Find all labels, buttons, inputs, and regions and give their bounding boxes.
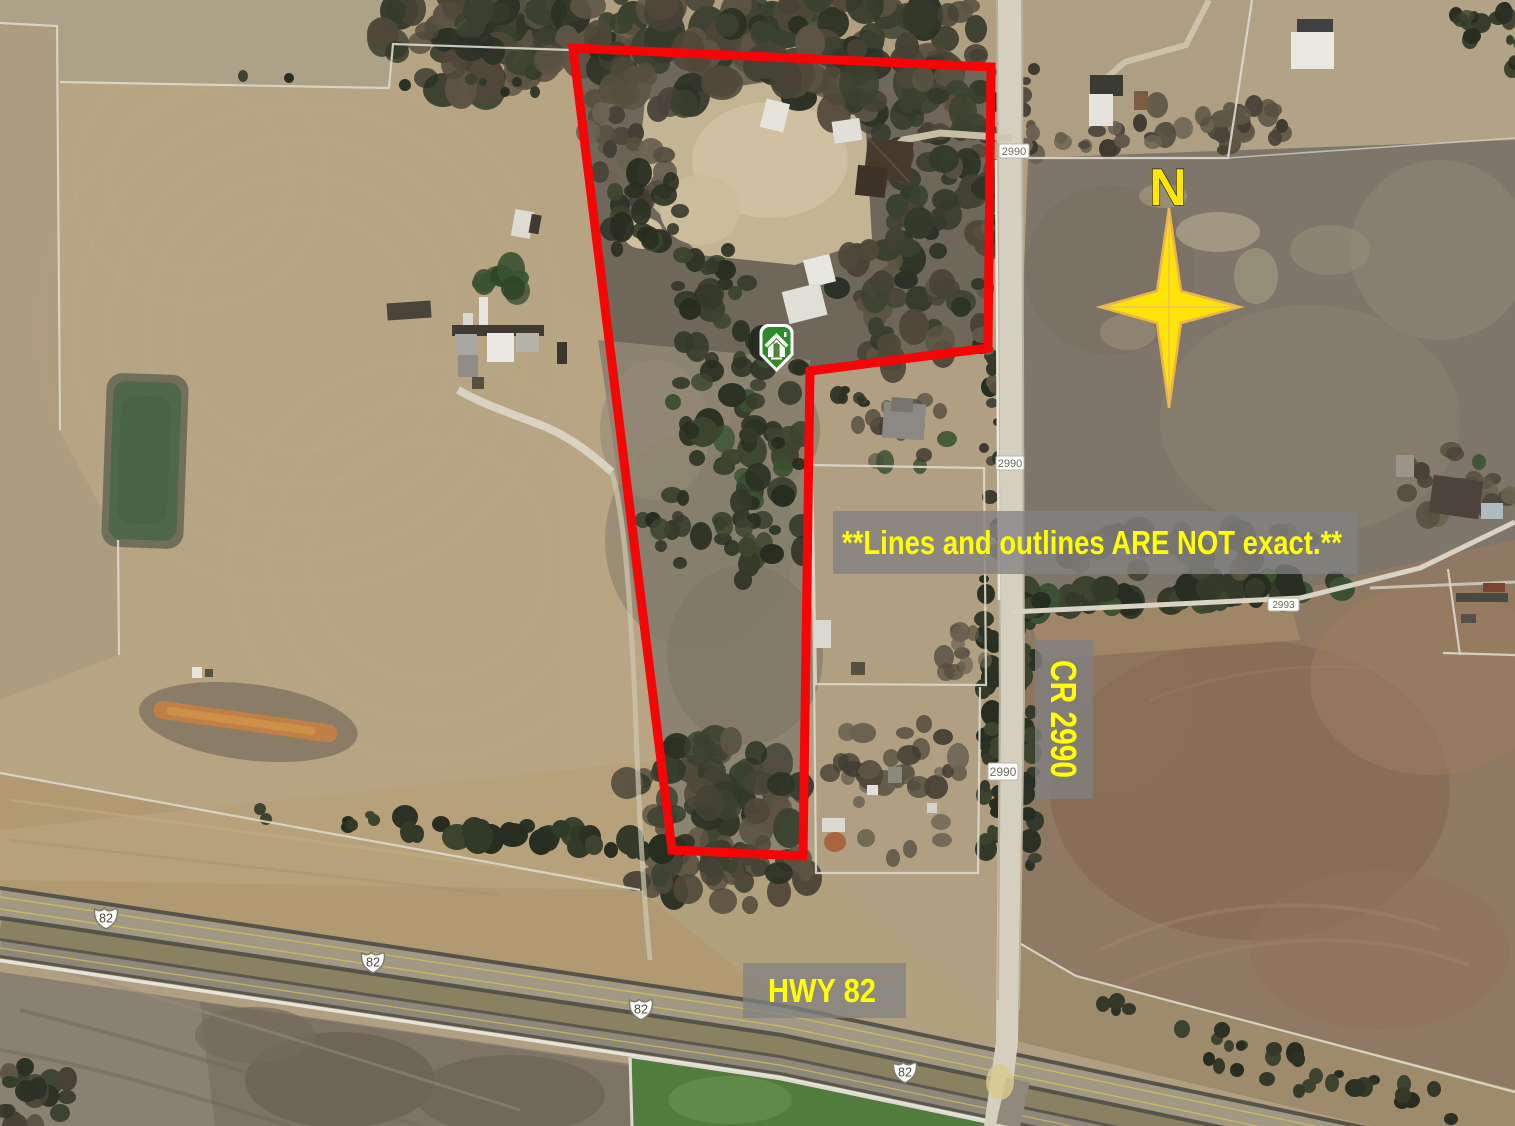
svg-text:2990: 2990 — [998, 458, 1022, 470]
svg-text:82: 82 — [366, 956, 380, 970]
svg-text:**Lines and outlines ARE NOT e: **Lines and outlines ARE NOT exact.** — [842, 524, 1342, 561]
svg-text:2990: 2990 — [990, 765, 1017, 779]
svg-text:82: 82 — [898, 1066, 912, 1080]
svg-text:CR 2990: CR 2990 — [1043, 660, 1084, 778]
svg-text:2993: 2993 — [1272, 600, 1295, 611]
svg-text:HWY 82: HWY 82 — [768, 972, 876, 1009]
svg-text:2990: 2990 — [1002, 146, 1026, 158]
svg-text:82: 82 — [634, 1003, 648, 1017]
svg-text:82: 82 — [99, 912, 113, 926]
